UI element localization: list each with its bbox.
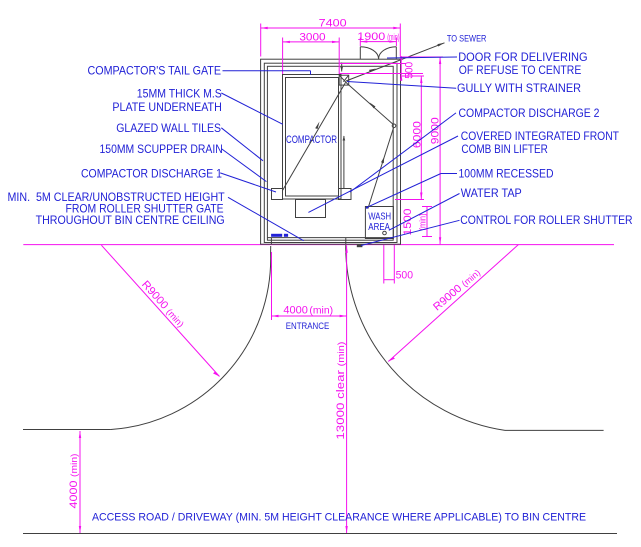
svg-text:7400: 7400 [319,18,347,30]
svg-text:4000: 4000 [283,304,308,316]
svg-text:COMB BIN LIFTER: COMB BIN LIFTER [461,143,548,156]
svg-text:4000 (min): 4000 (min) [68,454,80,509]
svg-text:R9000 (min): R9000 (min) [139,279,187,330]
svg-text:OF REFUSE TO CENTRE: OF REFUSE TO CENTRE [459,64,582,77]
svg-text:9000: 9000 [429,117,441,144]
svg-text:COMPACTOR DISCHARGE 1: COMPACTOR DISCHARGE 1 [81,168,222,181]
svg-text:150MM SCUPPER DRAIN: 150MM SCUPPER DRAIN [100,143,223,156]
svg-text:COVERED INTEGRATED FRONT: COVERED INTEGRATED FRONT [461,130,619,143]
svg-text:15MM THICK M.S: 15MM THICK M.S [137,88,222,101]
svg-text:ACCESS ROAD / DRIVEWAY (MIN. 5: ACCESS ROAD / DRIVEWAY (MIN. 5M HEIGHT C… [92,512,586,524]
svg-text:R9000 (min): R9000 (min) [431,267,483,314]
svg-text:TO SEWER: TO SEWER [447,34,487,44]
svg-text:500: 500 [396,270,413,282]
svg-text:GULLY WITH STRAINER: GULLY WITH STRAINER [457,82,581,95]
svg-text:1900: 1900 [357,31,385,43]
svg-text:100MM RECESSED: 100MM RECESSED [459,168,554,181]
svg-text:COMPACTOR DISCHARGE 2: COMPACTOR DISCHARGE 2 [459,107,600,120]
svg-text:DOOR FOR DELIVERING: DOOR FOR DELIVERING [458,51,587,64]
svg-text:GLAZED WALL TILES: GLAZED WALL TILES [116,122,221,135]
svg-text:WATER TAP: WATER TAP [461,187,522,200]
svg-text:PLATE UNDERNEATH: PLATE UNDERNEATH [112,101,221,114]
svg-text:(min): (min) [418,214,428,231]
svg-text:AREA: AREA [368,221,390,233]
svg-text:13000 clear (min): 13000 clear (min) [335,342,347,440]
svg-text:(min): (min) [387,32,399,42]
svg-text:THROUGHOUT BIN CENTRE CEILING: THROUGHOUT BIN CENTRE CEILING [36,214,225,227]
svg-text:CONTROL FOR ROLLER SHUTTER: CONTROL FOR ROLLER SHUTTER [460,214,632,227]
svg-text:(min): (min) [309,305,333,316]
svg-text:COMPACTOR'S TAIL GATE: COMPACTOR'S TAIL GATE [88,65,222,78]
svg-text:3000: 3000 [299,32,325,44]
svg-text:ENTRANCE: ENTRANCE [286,321,330,332]
